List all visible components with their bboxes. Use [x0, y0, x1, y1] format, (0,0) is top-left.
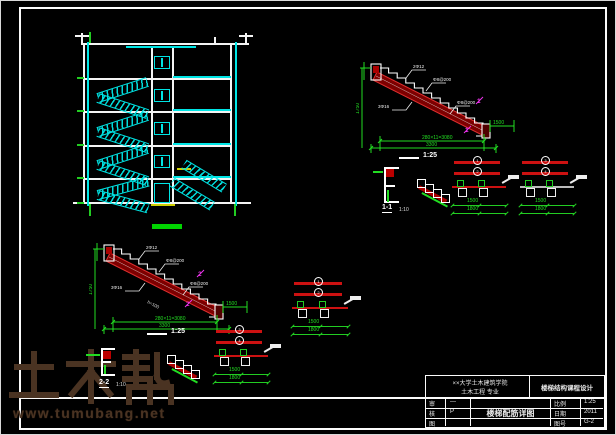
scale-label-bottom: 1:25 — [171, 328, 185, 335]
detail-arrow — [86, 354, 100, 356]
parapet-stub — [214, 37, 216, 45]
dim-side: 1500 — [493, 120, 504, 126]
detail-line — [101, 361, 111, 363]
stirrup-mark — [525, 180, 532, 187]
section-rib — [526, 188, 535, 197]
section-rib — [241, 357, 250, 366]
annotation: Φ8@200 — [433, 77, 452, 82]
tb-school-line2: 土木工程 专业 — [432, 387, 528, 396]
bar-mark-circle: 3 — [541, 156, 550, 165]
stair-flight — [96, 93, 149, 119]
mini-step — [441, 194, 450, 203]
rebar-group: 3415001800 — [520, 157, 578, 221]
tb-row-left-k: 审 — [429, 399, 435, 408]
detail-line — [384, 185, 395, 187]
annotation: 2Φ12 — [413, 64, 425, 69]
dim-tick — [504, 211, 508, 215]
annotation: Φ8@200 — [190, 281, 209, 286]
dim-rise: 1750 — [356, 103, 361, 114]
floor-line — [84, 145, 231, 147]
rebar-group: 1215001800 — [292, 278, 352, 342]
dim-text: 1500 — [535, 199, 546, 204]
dim-text: 1800 — [467, 207, 478, 212]
tb-school-line1: ××大学土木建筑学院 — [432, 378, 528, 387]
mini-step — [191, 370, 200, 379]
leader-label-smear — [508, 175, 519, 179]
annotation: Φ8@200 — [166, 258, 185, 263]
roof-slab-line — [126, 46, 196, 48]
section-rib — [547, 188, 556, 197]
base-highlight — [151, 204, 175, 206]
annotation: 2Φ12 — [146, 245, 158, 250]
dim-run: 280×11=3080 — [155, 316, 186, 322]
leader-label-smear — [350, 296, 361, 300]
window-mullion — [161, 157, 163, 166]
parapet-stub — [245, 33, 247, 45]
detail-rebar — [103, 351, 111, 359]
rebar-group: 1215001800 — [452, 157, 510, 221]
level-mark — [77, 77, 84, 79]
tb-row-right-v: G-2 — [584, 419, 594, 425]
section-rib — [220, 357, 229, 366]
column-line — [87, 42, 89, 206]
dim-tick — [572, 211, 576, 215]
level-mark — [234, 204, 236, 216]
annotation: Φ8@200 — [457, 100, 476, 105]
tb-vline — [580, 397, 581, 426]
dim-side: 1500 — [226, 301, 237, 307]
rebar-group: 3415001800 — [214, 326, 272, 390]
tb-row-left-k: 核 — [429, 409, 435, 418]
detail-dim — [104, 365, 106, 374]
tb-project: 楼梯结构课程设计 — [532, 382, 602, 392]
detail-rebar — [386, 169, 394, 177]
section-rib — [320, 309, 329, 318]
dim-text: 1800 — [535, 207, 546, 212]
dim-tick — [572, 203, 576, 207]
floor-slab-line — [173, 76, 231, 78]
svg-text:1: 1 — [477, 98, 481, 105]
svg-text:2: 2 — [198, 271, 202, 278]
annotation: 3Φ16 — [111, 285, 123, 290]
detail-1-1: 1-1 1:10 — [371, 163, 423, 217]
mini-step-detail — [417, 179, 455, 209]
detail-2-2: 2-2 1:10 — [86, 345, 138, 395]
tb-row-right-k: 日期 — [554, 409, 566, 418]
bar-mark-circle: 4 — [235, 336, 244, 345]
level-mark — [89, 204, 91, 216]
stair-flight — [97, 190, 150, 213]
watermark-url: www.tumubang.net — [13, 405, 166, 421]
section-rib — [458, 188, 467, 197]
leader-label-smear — [270, 344, 281, 348]
detail-line — [101, 348, 115, 350]
bar-mark-circle: 4 — [541, 167, 550, 176]
dim-rise: 1750 — [89, 284, 94, 295]
mini-step-detail — [167, 355, 205, 385]
window-mullion — [161, 58, 163, 67]
column-line — [235, 42, 237, 206]
tb-row-left-v: P — [450, 409, 454, 415]
level-mark — [77, 177, 84, 179]
dim-tick — [346, 332, 350, 336]
window-mullion — [161, 124, 163, 133]
tb-vline — [470, 397, 471, 426]
dim-text: 1500 — [467, 199, 478, 204]
stirrup-mark — [219, 349, 226, 356]
tb-row-right-k: 图号 — [554, 419, 566, 428]
stirrup-mark — [457, 180, 464, 187]
dim-tick — [504, 203, 508, 207]
level-mark — [89, 32, 91, 43]
roof-line — [81, 43, 249, 45]
tb-vline — [529, 376, 530, 397]
bar-mark-circle: 1 — [473, 156, 482, 165]
stair-flight — [96, 127, 149, 153]
scale-bar — [399, 157, 419, 159]
stirrup-mark — [319, 301, 326, 308]
dim-text: 1800 — [229, 376, 240, 381]
floor-slab-line — [173, 109, 231, 111]
floor-slab-line — [173, 143, 231, 145]
bar-mark-circle: 2 — [473, 167, 482, 176]
tb-row-right-v: 2011 — [584, 409, 597, 415]
stairwell-wall — [151, 48, 153, 204]
tb-drawing-title: 楼梯配筋详图 — [472, 408, 549, 419]
dim-text: 1500 — [308, 320, 319, 325]
bar-mark-circle: 2 — [314, 288, 323, 297]
dim-total: 3300 — [159, 323, 170, 329]
floor-line — [84, 111, 231, 113]
stair-flight-detail-bottom: 2Φ12 Φ8@200 3Φ16 Φ8@200 h=100 280×11=308… — [89, 237, 254, 337]
level-mark — [77, 110, 84, 112]
stirrup-mark — [240, 349, 247, 356]
slab-note: h=100 — [147, 299, 161, 309]
title-block: ××大学土木建筑学院 土木工程 专业 楼梯结构课程设计 楼梯配筋详图 审 — 核… — [425, 375, 605, 428]
svg-text:1: 1 — [465, 127, 469, 134]
tb-row-left-k: 图 — [429, 419, 435, 428]
stirrup-mark — [297, 301, 304, 308]
dim-text: 1500 — [229, 368, 240, 373]
tb-vline — [550, 397, 551, 426]
stair-flight-detail-top: 2Φ12 Φ8@200 3Φ16 Φ8@200 280×11=3080 3300… — [356, 56, 521, 156]
dim-run: 280×11=3080 — [422, 135, 453, 141]
stirrup-mark — [546, 180, 553, 187]
level-mark — [77, 144, 84, 146]
dim-text: 1800 — [308, 328, 319, 333]
section-label-1-1: 1-1 — [382, 204, 392, 213]
section-label-2-2: 2-2 — [99, 379, 109, 388]
leader-label-smear — [576, 175, 587, 179]
floor-line — [84, 78, 231, 80]
dim-tick — [266, 372, 270, 376]
wall-line — [230, 45, 232, 204]
svg-text:2: 2 — [186, 301, 190, 308]
dim-total: 3300 — [426, 142, 437, 148]
section-title-smear — [152, 224, 182, 229]
tb-row-left-v: — — [450, 399, 456, 405]
section-scale-1-1: 1:10 — [399, 207, 409, 213]
stirrup-mark — [478, 180, 485, 187]
wall-line — [83, 45, 85, 204]
detail-dim — [373, 171, 383, 173]
bar-mark-circle: 3 — [235, 325, 244, 334]
section-rib — [479, 188, 488, 197]
door — [154, 183, 170, 203]
start-beam-rebar — [373, 66, 379, 73]
scale-bar — [147, 333, 167, 335]
parapet-stub — [81, 33, 83, 45]
detail-dim — [387, 190, 389, 202]
dim-tick — [266, 380, 270, 384]
level-mark — [77, 202, 84, 204]
annotation: 3Φ16 — [378, 104, 390, 109]
cad-sheet: 2Φ12 Φ8@200 3Φ16 Φ8@200 280×11=3080 3300… — [0, 0, 616, 435]
building-section-drawing — [1, 1, 261, 231]
bar-mark-circle: 1 — [314, 277, 323, 286]
section-rib — [298, 309, 307, 318]
scale-label-top: 1:25 — [423, 152, 437, 159]
detail-line — [101, 374, 115, 376]
tb-row-right-v: 1:25 — [584, 399, 596, 405]
tb-row-right-k: 比例 — [554, 399, 566, 408]
start-beam-rebar — [106, 247, 112, 254]
tb-vline — [445, 397, 446, 426]
section-scale-2-2: 1:10 — [116, 382, 126, 388]
window-mullion — [161, 91, 163, 100]
dim-tick — [346, 324, 350, 328]
tb-hline — [426, 397, 603, 398]
